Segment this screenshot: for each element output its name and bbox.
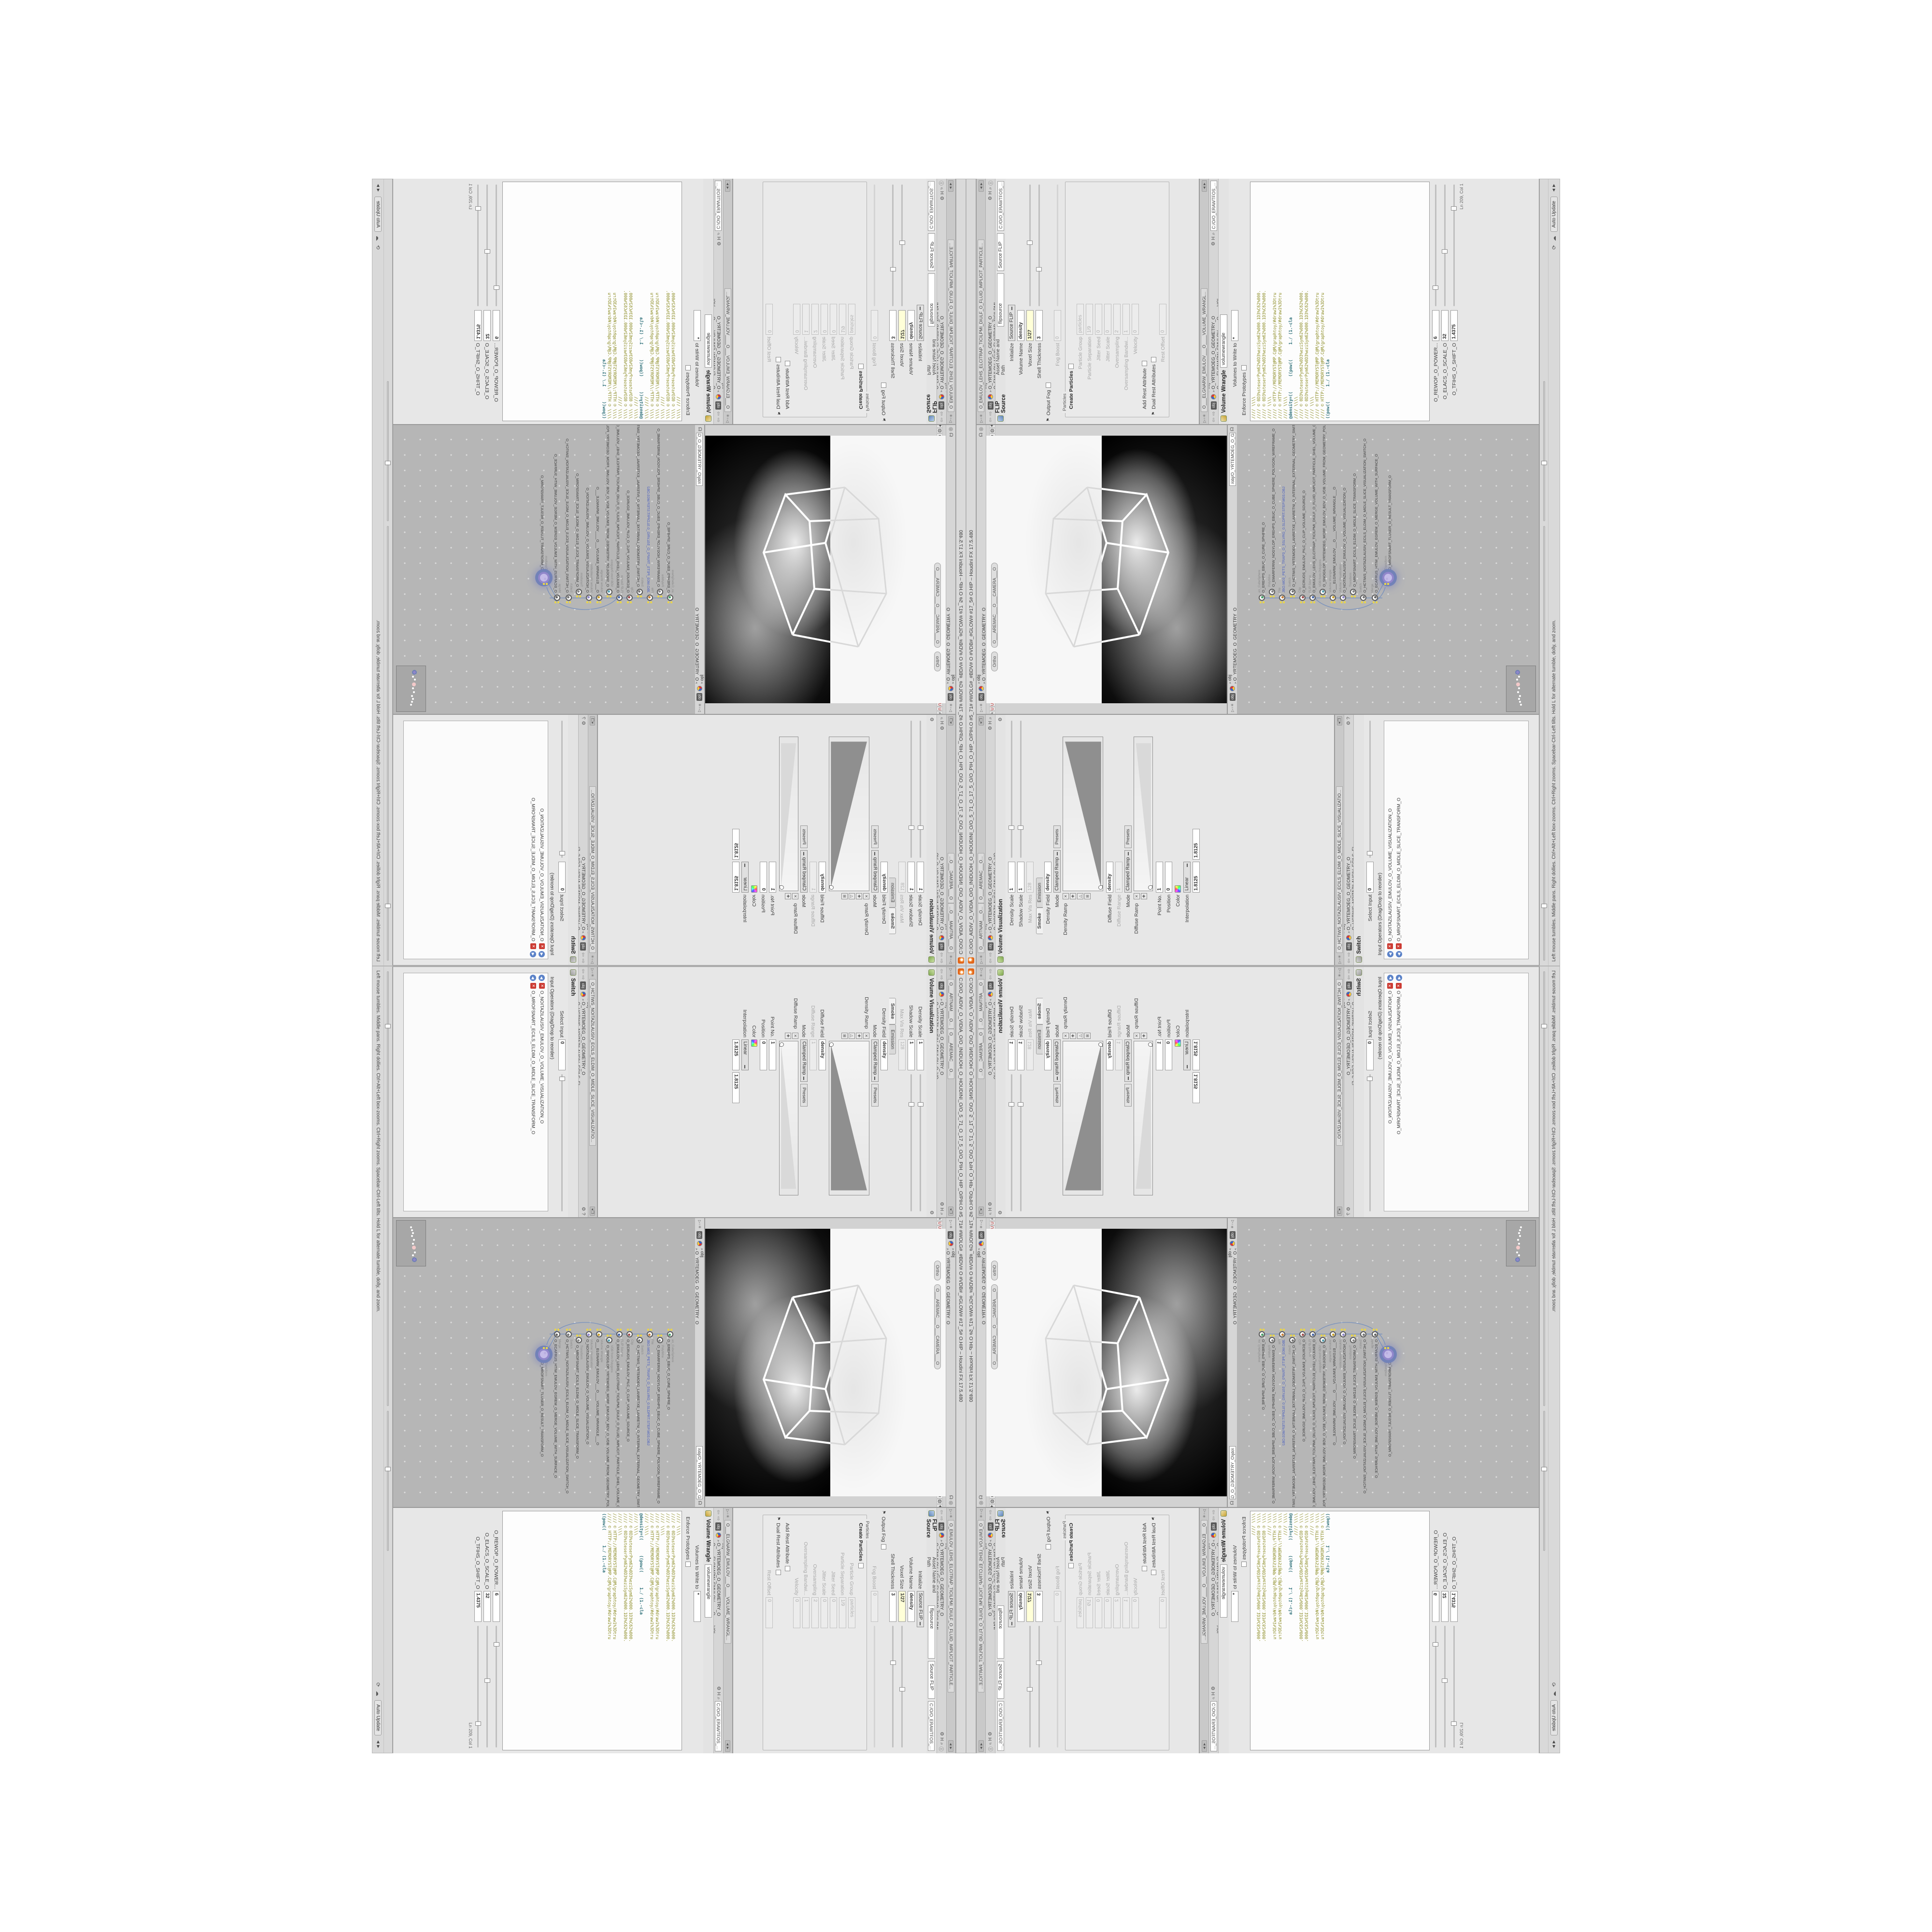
pane-controls-icon[interactable]: ▷▫✳ xyxy=(949,1509,953,1519)
search-icon[interactable]: ⌕ xyxy=(988,717,993,720)
node-icon[interactable] xyxy=(647,1331,653,1337)
network-node[interactable]: Merge O_ECAFRUS_HTIW_EMULOV_EGREM_O_MERG… xyxy=(554,1331,561,1478)
param-field[interactable]: 128 xyxy=(1026,862,1034,893)
obj-context-chip[interactable]: obj xyxy=(988,401,994,410)
recook-icon[interactable]: ⟳ xyxy=(1551,245,1557,249)
param-field[interactable]: density xyxy=(1106,1039,1113,1070)
node-icon[interactable] xyxy=(554,595,561,601)
breadcrumb-item[interactable]: ▸O_YRTEMOEG_O_GEOMETRY_O xyxy=(946,608,951,684)
search-icon[interactable]: ⌕ xyxy=(1211,1697,1216,1700)
param-field[interactable]: * xyxy=(1231,1591,1238,1622)
network-node[interactable]: Switch O_HCTIWS_NOITAZILAUSIV_ECILS_ELDI… xyxy=(565,439,573,601)
param-field[interactable]: density xyxy=(1017,310,1024,341)
param-field[interactable]: 1 xyxy=(917,862,924,893)
param-slider[interactable] xyxy=(910,721,912,858)
breadcrumb-item[interactable]: ▸obj xyxy=(951,608,956,684)
node-icon[interactable] xyxy=(668,1331,674,1337)
param-row[interactable]: Interpolation Linear xyxy=(740,969,750,1215)
obj-context-chip[interactable]: obj xyxy=(1211,401,1217,410)
param-field[interactable]: 32 xyxy=(1441,1591,1449,1622)
ramp-add-icon[interactable]: ✚ xyxy=(856,893,862,899)
delete-input-icon[interactable]: ✕ xyxy=(530,943,536,949)
network-canvas[interactable]: Geometry an_CubeSphere xyxy=(1237,1218,1539,1507)
search-icon[interactable]: ⌕ xyxy=(716,232,721,235)
breadcrumb-item[interactable]: ▸obj xyxy=(721,1540,723,1634)
update-mode-selector[interactable]: Auto Update xyxy=(1550,197,1558,232)
pane-controls-icon[interactable]: ▷▫✳ xyxy=(949,1220,953,1229)
pane-tab[interactable]: O_EMULOV_LEHS_ELCITRAP_TICILPMI_DIULF_O_… xyxy=(948,1520,954,1692)
param-flag-icon[interactable]: ⚑ xyxy=(776,1516,781,1521)
param-field[interactable]: 3 xyxy=(889,1591,896,1622)
houdini-flag-icon[interactable]: H xyxy=(988,1207,993,1211)
network-path-field[interactable]: /obj/O_YRTEMOEG_O_GEOMETRY_O xyxy=(1229,1446,1236,1499)
camera-icon[interactable]: ◎ xyxy=(948,427,953,431)
param-field[interactable]: 1/9 xyxy=(1086,1597,1093,1628)
delete-input-icon[interactable]: ✕ xyxy=(539,983,545,989)
breadcrumb-item[interactable]: ▸O_YRTEMOEG_O_GEOMETRY_O xyxy=(1346,999,1351,1094)
param-field[interactable]: density xyxy=(819,862,826,893)
network-node[interactable]: Switch O_HCTIWS_NOITAZILAUSIV_ECILS_ELDI… xyxy=(1359,439,1367,601)
network-node[interactable]: Transform O_MROFSNART_TLUSER_O_RESULT_TR… xyxy=(538,475,550,583)
param-field[interactable]: 0 xyxy=(558,862,566,893)
param-row[interactable]: O_TFIHS_O_SHIFT_O 1.4375 xyxy=(473,1510,483,1751)
input-operator-row[interactable]: ◀ ✕ O_MROFSNART_ECILS_ELDIM_O_MIDLE_SLIC… xyxy=(529,975,538,1209)
color-swatch[interactable] xyxy=(1175,1039,1181,1047)
param-row[interactable]: Mode Clamped Ramp Presets xyxy=(799,717,809,963)
gear-icon[interactable]: ⚙ xyxy=(716,241,721,246)
param-row[interactable]: Point No. 1 xyxy=(1155,969,1164,1215)
param-checkbox[interactable] xyxy=(685,1562,691,1567)
breadcrumb-item[interactable]: ▸O_YRTEMOEG_O_GEOMETRY_O xyxy=(981,1248,987,1324)
gear-icon[interactable]: ⚙ xyxy=(929,1210,934,1215)
param-slider[interactable] xyxy=(910,1074,912,1211)
forward-arrow-icon[interactable]: ⇨ xyxy=(938,975,945,980)
param-checkbox[interactable] xyxy=(858,1563,864,1568)
presets-button[interactable]: Presets xyxy=(1053,1084,1061,1106)
network-node[interactable]: Volume Visualization O_NOITAZILAUSIV_EMU… xyxy=(585,1331,593,1444)
network-node[interactable]: Switch O_HCTIWS_YRTEMOEG_LANRETXE_LANRET… xyxy=(1288,425,1296,595)
node-icon[interactable] xyxy=(1279,595,1285,601)
param-field[interactable]: 0 xyxy=(766,1597,773,1628)
param-row[interactable]: Create Particles xyxy=(856,183,866,416)
folder-tab[interactable]: Smoke xyxy=(1036,998,1043,1024)
param-row[interactable]: Add Rest Attribute xyxy=(783,183,792,416)
obj-context-chip[interactable]: obj xyxy=(1346,981,1352,990)
param-flag-icon[interactable]: ⚑ xyxy=(776,411,781,416)
color-swatch[interactable] xyxy=(751,1039,757,1047)
pin-icon[interactable]: ☊ xyxy=(1230,427,1235,431)
breadcrumb-item[interactable]: ▸obj xyxy=(944,999,946,1079)
node-icon[interactable] xyxy=(1289,589,1295,595)
update-mode-selector[interactable]: Auto Update xyxy=(1550,1700,1558,1736)
pane-controls-icon[interactable]: ▷▫✳ xyxy=(949,703,953,712)
param-row[interactable]: Shadow Scale 1 xyxy=(907,717,916,963)
insert-input-icon[interactable]: ◀ xyxy=(1396,951,1402,957)
param-slider[interactable] xyxy=(1444,1626,1446,1747)
param-field[interactable]: * xyxy=(694,310,701,341)
param-row[interactable]: O_ELACS_O_SCALE_O 32 xyxy=(1440,1510,1449,1751)
scroll-chip-icon[interactable]: ◄► xyxy=(375,183,381,193)
param-row[interactable]: 1.8125 1.8125 xyxy=(1192,717,1201,963)
recook-icon[interactable]: ⟳ xyxy=(375,1682,381,1687)
network-node[interactable]: PolyWire O_EMARFERIW_NOGYLOP_EREHPS_EBUC… xyxy=(1268,1337,1276,1504)
pane-tab[interactable]: O___ELGNARW_EMULOV___O____VOLUME_WRANGL.… xyxy=(724,1520,731,1644)
pane-controls-icon[interactable]: ▷▫✳ xyxy=(1202,1509,1207,1519)
search-icon[interactable]: ⌕ xyxy=(716,1697,721,1700)
param-field[interactable]: 0 xyxy=(793,1597,800,1628)
node-icon[interactable] xyxy=(1360,595,1366,601)
param-row[interactable]: Interpolation Linear xyxy=(1182,969,1192,1215)
param-checkbox[interactable] xyxy=(858,364,864,369)
asset-menu[interactable]: Source FLIP xyxy=(997,1661,1004,1699)
param-field[interactable]: 1 xyxy=(1115,1039,1122,1070)
insert-input-icon[interactable]: ◀ xyxy=(1387,975,1393,981)
viewport-render-area[interactable]: Ortho O___AREMAC___O___CAMERA___O xyxy=(705,1229,946,1496)
network-node[interactable]: Transform O_MROFSNART_ECILS_ELDIM_O_MIDL… xyxy=(575,1337,583,1459)
node-icon[interactable] xyxy=(1289,1337,1295,1343)
input-operator-row[interactable]: ◀ ✕ O_MROFSNART_ECILS_ELDIM_O_MIDLE_SLIC… xyxy=(1394,723,1403,957)
param-checkbox[interactable] xyxy=(1068,1563,1074,1568)
breadcrumb-item[interactable]: ▸obj xyxy=(977,1248,981,1324)
gear-icon[interactable]: ⚙ xyxy=(988,1732,993,1736)
network-node[interactable]: File JBO.M03_PETS_TRAP3_O_5SLVRG_0.SLDPR… xyxy=(1278,1331,1286,1446)
node-icon[interactable] xyxy=(576,589,582,595)
param-row[interactable]: Diffuse Field density xyxy=(818,717,827,963)
back-arrow-icon[interactable]: ⇦ xyxy=(987,1510,994,1514)
density-ramp-widget[interactable] xyxy=(829,1041,869,1195)
param-row[interactable]: Color xyxy=(750,717,759,963)
param-row[interactable]: Point No. 1 xyxy=(1155,717,1164,963)
param-field[interactable]: 0 xyxy=(558,1039,566,1070)
param-row[interactable]: Initialize Source FLIP xyxy=(916,181,925,422)
node-icon[interactable] xyxy=(1382,572,1394,583)
param-checkbox[interactable] xyxy=(1068,364,1074,369)
folder-tab[interactable]: Emission xyxy=(1036,1024,1043,1055)
param-field[interactable]: 1.4375 xyxy=(1450,310,1458,341)
param-row[interactable]: 1.8125 1.8125 xyxy=(731,969,740,1215)
param-checkbox[interactable] xyxy=(1241,365,1247,370)
param-field[interactable]: 0 xyxy=(830,1597,837,1628)
param-field[interactable]: 128 xyxy=(898,862,906,893)
param-row[interactable]: Max Vis Res 128 xyxy=(897,717,907,963)
secondary-slider[interactable] xyxy=(1543,381,1545,521)
param-field[interactable]: density xyxy=(1044,862,1051,893)
param-field[interactable]: 2 xyxy=(811,1597,819,1628)
obj-context-chip[interactable]: obj xyxy=(939,942,945,951)
param-checkbox[interactable] xyxy=(785,1566,790,1571)
back-arrow-icon[interactable]: ⇦ xyxy=(938,1510,945,1514)
param-row[interactable]: Oversampling Bandwi... 1 xyxy=(801,1516,810,1749)
breadcrumb-item[interactable]: ▸O____ELGNARW_EMULOV____O____VOI xyxy=(713,298,716,392)
playbar-slider[interactable] xyxy=(1543,971,1545,1406)
info-icon[interactable]: ⓘ xyxy=(938,181,945,185)
param-field[interactable]: 1 xyxy=(908,1039,915,1070)
ramp-expand-icon[interactable]: ⊞ xyxy=(1084,1033,1091,1039)
param-row[interactable]: O_ELACS_O_SCALE_O 32 xyxy=(483,181,492,422)
param-row[interactable]: Density Scale 1 xyxy=(1007,717,1016,963)
node-icon[interactable] xyxy=(1269,1337,1275,1343)
presets-button[interactable]: Presets xyxy=(1124,1084,1132,1106)
param-row[interactable]: Initialize Source FLIP xyxy=(916,1510,925,1751)
param-slider[interactable] xyxy=(1020,1074,1022,1211)
ramp-add-icon[interactable]: ✚ xyxy=(1070,1033,1076,1039)
param-field[interactable]: 1 xyxy=(802,304,810,335)
forward-arrow-icon[interactable]: ⇨ xyxy=(987,1516,994,1520)
presets-button[interactable]: Presets xyxy=(800,1084,808,1106)
obj-context-chip[interactable]: obj xyxy=(1230,693,1236,701)
param-row[interactable]: Mode Clamped Ramp Presets xyxy=(1052,717,1062,963)
node-icon[interactable] xyxy=(576,1337,582,1343)
houdini-flag-icon[interactable]: H xyxy=(939,721,944,724)
param-field[interactable]: 1 xyxy=(802,1597,810,1628)
pane-controls-icon[interactable]: ▷▫✳ xyxy=(1230,703,1235,712)
breadcrumb-item[interactable]: ▸obj xyxy=(586,838,588,933)
pane-controls-icon[interactable]: ▷▫✳ xyxy=(949,954,953,964)
asset-path-field[interactable]: C:/O/O_ERAWTFOS_... xyxy=(928,181,935,231)
param-row[interactable]: Enforce Prototypes xyxy=(683,1510,693,1751)
param-row[interactable]: Point No. 1 xyxy=(768,717,777,963)
param-field[interactable]: Source FLIP xyxy=(917,1591,924,1627)
display-option-icon[interactable]: ✦ xyxy=(989,425,995,428)
obj-context-chip[interactable]: obj xyxy=(979,1231,984,1239)
pane-controls-icon[interactable]: ▷▫✳ xyxy=(697,1220,702,1229)
forward-arrow-icon[interactable]: ⇨ xyxy=(1210,412,1217,416)
param-checkbox[interactable] xyxy=(881,1544,886,1549)
param-checkbox[interactable] xyxy=(776,1570,781,1575)
forward-arrow-icon[interactable]: ⇨ xyxy=(1346,975,1352,980)
param-row[interactable]: Voxel Size 1/27 xyxy=(1025,181,1035,422)
asset-name-field[interactable]: flipsource xyxy=(928,1605,935,1659)
param-row[interactable]: Volumes to Write to * xyxy=(1230,181,1239,422)
obj-context-chip[interactable]: obj xyxy=(716,1522,722,1531)
param-row[interactable]: O_TFIHS_O_SHIFT_O 1.4375 xyxy=(1449,1510,1459,1751)
node-icon[interactable] xyxy=(538,1349,550,1360)
scroll-chip-icon[interactable]: ◄► xyxy=(1551,1739,1557,1749)
node-icon[interactable] xyxy=(668,595,674,601)
asset-path-field[interactable]: C:/O/O_ERAWTFOS_... xyxy=(715,181,722,231)
param-slider[interactable] xyxy=(496,185,497,306)
param-slider[interactable] xyxy=(874,185,875,306)
search-icon[interactable]: ⌕ xyxy=(939,1742,944,1745)
param-field[interactable]: 128 xyxy=(898,1039,906,1070)
param-field[interactable]: 1 xyxy=(908,862,915,893)
node-icon[interactable] xyxy=(1269,589,1275,595)
pane-split-icon[interactable]: ◄► xyxy=(949,180,954,192)
node-icon[interactable] xyxy=(637,589,643,595)
param-row[interactable]: Oversampling Bandwi... 1 xyxy=(801,183,810,416)
playbar-handle[interactable] xyxy=(1541,1024,1547,1028)
network-node[interactable]: Volume Wrangle O___ELGNARW_EMULOV___O___… xyxy=(596,487,603,601)
node-icon[interactable] xyxy=(1259,595,1265,601)
pane-controls-icon[interactable]: ▷▫✳ xyxy=(979,703,983,712)
gear-icon[interactable]: ⚙ xyxy=(988,726,993,730)
param-field[interactable]: 1 xyxy=(1122,1597,1130,1628)
network-path-field[interactable]: /obj/O_YRTEMOEG_O_GEOMETRY_O xyxy=(696,1446,703,1499)
param-row[interactable]: Velocity 0 xyxy=(792,183,801,416)
param-field[interactable]: Linear xyxy=(741,862,749,893)
pane-split-icon[interactable]: ◄► xyxy=(725,1740,731,1752)
network-node[interactable]: Merge O_ECAFRUS_HTIW_EMULOV_EGREM_O_MERG… xyxy=(554,454,561,601)
search-icon[interactable]: ⌕ xyxy=(1211,232,1216,235)
scroll-chip-icon[interactable]: ◄► xyxy=(1551,183,1557,193)
pane-split-icon[interactable]: ▾❐ xyxy=(949,716,954,725)
param-row[interactable]: Particle Group particles xyxy=(847,1516,856,1749)
param-flag-icon[interactable]: ⚑ xyxy=(881,417,886,422)
pane-tab[interactable]: O___AREMAC___O... xyxy=(978,853,984,903)
node-icon[interactable] xyxy=(597,595,603,601)
param-field[interactable]: 1 xyxy=(1156,862,1163,893)
param-field[interactable]: 1.8125 xyxy=(732,862,739,893)
network-canvas[interactable]: Geometry an_CubeSphere xyxy=(393,425,695,714)
pane-tab[interactable]: O___ARTNAM___O... xyxy=(978,979,984,1029)
param-field[interactable]: 6 xyxy=(1432,310,1439,341)
param-row[interactable]: Diffuse Field density xyxy=(1105,717,1114,963)
pane-controls-icon[interactable]: ▷▫✳ xyxy=(697,703,702,712)
ramp-revert-icon[interactable]: △ xyxy=(849,1033,855,1039)
node-icon[interactable] xyxy=(1350,589,1356,595)
vex-code-editor[interactable]: //// \\\\//// © 0D3%steserPym62%0D3%eziS… xyxy=(1250,182,1430,421)
param-row[interactable]: ⚑ Dual Rest Attributes xyxy=(1149,183,1158,416)
param-field[interactable]: 32 xyxy=(483,310,491,341)
folder-tab[interactable]: Emission xyxy=(889,878,896,908)
param-flag-icon[interactable]: ⚑ xyxy=(1046,417,1051,422)
network-canvas[interactable]: Geometry an_CubeSphere xyxy=(393,1218,695,1507)
param-slider[interactable] xyxy=(1020,721,1022,858)
param-slider[interactable] xyxy=(1435,1626,1436,1747)
param-row[interactable]: Voxel Size 1/27 xyxy=(897,181,907,422)
pane-controls-icon[interactable]: ▷▫✳ xyxy=(1337,968,1342,978)
input-operator-row[interactable]: ◀ ✕ O_NOITAZILAUSIV_EMULOV_O_VOLUME_VISU… xyxy=(538,975,546,1209)
param-row[interactable]: Oversampling 2 xyxy=(1112,1516,1122,1749)
ramp-expand-icon[interactable]: ⊞ xyxy=(841,1033,848,1039)
param-field-2[interactable]: 1.8125 xyxy=(732,1072,739,1103)
ramp-add-icon[interactable]: ✚ xyxy=(785,1033,791,1039)
param-field[interactable]: density xyxy=(881,862,888,893)
houdini-flag-icon[interactable]: H xyxy=(716,237,721,240)
param-row[interactable]: Enforce Prototypes xyxy=(683,181,693,422)
param-field[interactable]: * xyxy=(694,1591,701,1622)
breadcrumb-item[interactable]: ▸O_YRTEMOEG_O_GEOMETRY_O xyxy=(695,608,700,684)
param-field[interactable]: 32 xyxy=(483,1591,491,1622)
playbar-slider[interactable] xyxy=(387,526,389,961)
param-slider[interactable] xyxy=(920,721,921,858)
param-row[interactable]: Fog Boost 0 xyxy=(1053,181,1062,422)
param-row[interactable]: Oversampling Bandwi... 1 xyxy=(1122,183,1131,416)
network-minimap[interactable] xyxy=(396,1220,426,1266)
param-field[interactable]: Clamped Ramp xyxy=(871,850,879,893)
node-icon[interactable] xyxy=(586,595,593,601)
pane-split-icon[interactable]: ◄► xyxy=(1202,1740,1207,1752)
node-name-field[interactable]: volumewrangle xyxy=(1220,1564,1227,1618)
param-field[interactable]: 0 xyxy=(1104,1597,1111,1628)
ramp-add-icon[interactable]: ✚ xyxy=(1141,1033,1147,1039)
param-row[interactable]: Volume Name density xyxy=(1016,181,1025,422)
node-icon[interactable] xyxy=(657,1337,664,1343)
folder-tab[interactable]: Emission xyxy=(889,1024,896,1055)
pane-split-icon[interactable]: ▾❐ xyxy=(590,716,596,725)
param-field[interactable]: 1.8125 xyxy=(732,1039,739,1070)
forward-arrow-icon[interactable]: ⇨ xyxy=(987,975,994,980)
presets-button[interactable]: Presets xyxy=(871,1084,879,1106)
back-arrow-icon[interactable]: ⇦ xyxy=(938,969,945,973)
asset-name-field[interactable]: flipsource xyxy=(997,273,1004,327)
help-icon[interactable]: ? xyxy=(581,717,586,720)
param-slider[interactable] xyxy=(561,721,563,858)
param-field[interactable]: Clamped Ramp xyxy=(1124,1039,1132,1082)
projection-pill[interactable]: Ortho xyxy=(991,652,998,671)
forward-arrow-icon[interactable]: ⇨ xyxy=(580,952,586,957)
param-row[interactable]: Jitter Scale 0 xyxy=(820,1516,829,1749)
param-row[interactable]: Mode Clamped Ramp Presets xyxy=(1052,969,1062,1215)
param-row[interactable]: Enforce Prototypes xyxy=(1239,181,1249,422)
param-flag-icon[interactable]: ⚑ xyxy=(1151,1516,1156,1521)
color-swatch[interactable] xyxy=(1175,885,1181,893)
insert-input-icon[interactable]: ◀ xyxy=(1396,975,1402,981)
back-arrow-icon[interactable]: ⇦ xyxy=(938,418,945,422)
breadcrumb-item[interactable]: ▸O_EMULOV_LEHS_ELCITRAP_TICILPMI_DI xyxy=(937,1540,939,1634)
param-slider[interactable] xyxy=(901,185,903,306)
node-icon[interactable] xyxy=(1382,1349,1394,1360)
param-slider[interactable] xyxy=(1038,1626,1040,1747)
network-node[interactable]: FLIP Source O_EMULOV_LEHS_ELCITRAP_TICIL… xyxy=(616,1331,624,1507)
pin-icon[interactable]: ☊ xyxy=(948,433,953,437)
breadcrumb-item[interactable]: ▸O____ELGNARW_EMULOV____O____VOI xyxy=(713,1540,716,1634)
param-field[interactable]: 0 xyxy=(871,1591,878,1622)
param-field-2[interactable]: 1.8125 xyxy=(1193,1072,1200,1103)
param-row[interactable]: Max Vis Res 128 xyxy=(897,969,907,1215)
network-node[interactable]: Clip O_ECRUOS_EMULOV_PILC_O_CLIP_VOLUME_… xyxy=(1298,1331,1306,1442)
pane-split-icon[interactable]: ▾❐ xyxy=(979,1207,984,1216)
param-field[interactable]: 1 xyxy=(1115,862,1122,893)
param-row[interactable]: Select Input 0 xyxy=(1365,717,1375,963)
gear-icon[interactable]: ⚙ xyxy=(929,717,934,722)
density-ramp-widget[interactable] xyxy=(1063,737,1103,891)
asset-path-field[interactable]: C:/O/O_ERAWTFOS_... xyxy=(715,1701,722,1751)
param-row[interactable]: Particle Separation 1/9 xyxy=(838,183,847,416)
param-row[interactable]: Velocity 0 xyxy=(1131,183,1140,416)
folder-tab[interactable]: Emission xyxy=(1036,878,1043,908)
param-field[interactable]: 0 xyxy=(1095,304,1102,335)
node-icon[interactable] xyxy=(607,1337,613,1343)
node-icon[interactable] xyxy=(1309,595,1316,601)
breadcrumb-item[interactable]: ▸O_YRTEMOEG_O_GEOMETRY_O xyxy=(716,1540,721,1634)
param-field[interactable]: 128 xyxy=(1026,1039,1034,1070)
pane-controls-icon[interactable]: ▷▫✳ xyxy=(726,1509,730,1519)
param-row[interactable]: Rest Offset 0 xyxy=(765,183,774,416)
param-flag-icon[interactable]: ⚑ xyxy=(1046,1510,1051,1515)
param-field[interactable]: 1 xyxy=(810,862,817,893)
network-node[interactable]: File JBO.M03_PETS_TRAP3_O_5SLVRG_0.SLDPR… xyxy=(646,486,654,601)
param-row[interactable]: Mode Clamped Ramp Presets xyxy=(1123,969,1133,1215)
breadcrumb-item[interactable]: ▸O_YRTEMOEG_O_GEOMETRY_O xyxy=(988,298,993,392)
network-minimap[interactable] xyxy=(396,666,426,712)
node-icon[interactable] xyxy=(1360,1331,1366,1337)
param-field[interactable]: 3 xyxy=(1036,1591,1043,1622)
param-field[interactable]: 1 xyxy=(1017,862,1024,893)
network-minimap[interactable] xyxy=(1506,666,1536,712)
network-node[interactable]: an_CubeSphere O_EREHPS_EBUC_O_CUBE_SPHER… xyxy=(1258,522,1265,601)
pane-controls-icon[interactable]: ▷▫✳ xyxy=(726,413,730,423)
param-field[interactable]: 32 xyxy=(1441,310,1449,341)
diffuse-ramp-widget[interactable] xyxy=(779,1041,798,1195)
param-row[interactable]: Particle Separation 1/9 xyxy=(1085,1516,1094,1749)
pane-tab[interactable]: O_EMULOV_LEHS_ELCITRAP_TICILPMI_DIULF_O_… xyxy=(978,240,984,412)
param-field[interactable]: 0 xyxy=(1054,1591,1061,1622)
param-row[interactable]: Position 0 xyxy=(759,717,768,963)
param-row[interactable]: Density Field density xyxy=(1043,717,1052,963)
param-row[interactable]: O_ELACS_O_SCALE_O 32 xyxy=(483,1510,492,1751)
param-field[interactable]: 0 xyxy=(1165,862,1172,893)
